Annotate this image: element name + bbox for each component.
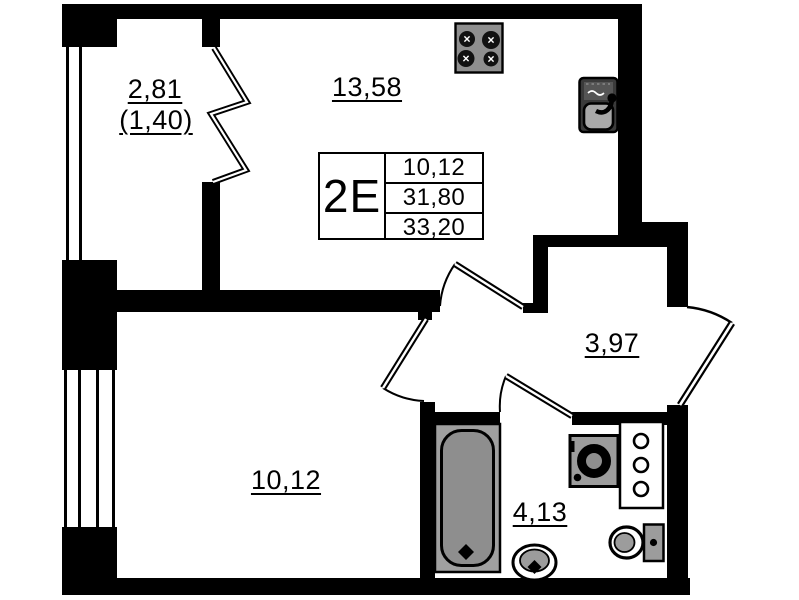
floor-plan: 2,81 (1,40) 13,58 3,97 10,12 4,13 2E 10,…: [0, 0, 799, 600]
door-bathroom-icon: [500, 376, 572, 416]
area-label-kitchen-living: 13,58: [318, 72, 416, 103]
unit-info-rows: 10,12 31,80 33,20: [386, 154, 482, 238]
washbasin-icon: [513, 545, 556, 580]
unit-living-area: 10,12: [386, 154, 482, 182]
door-entry-icon: [680, 307, 732, 405]
stove-icon: [456, 24, 503, 73]
door-bedroom-icon: [383, 319, 426, 401]
utility-shaft-icon: [620, 422, 663, 508]
area-label-bedroom: 10,12: [238, 465, 334, 496]
unit-total-area: 33,20: [386, 212, 482, 242]
balcony-door-accordion-icon: [211, 48, 247, 182]
washing-machine-icon: [570, 436, 618, 487]
area-label-bathroom: 4,13: [498, 497, 582, 528]
kitchen-sink-icon: [580, 78, 618, 132]
unit-area-without-balcony: 31,80: [386, 182, 482, 212]
unit-type-label: 2E: [320, 154, 386, 238]
area-label-balcony-reduced: (1,40): [106, 105, 206, 136]
unit-info-table: 2E 10,12 31,80 33,20: [318, 152, 484, 240]
area-label-hallway: 3,97: [570, 328, 654, 359]
toilet-icon: [610, 525, 664, 562]
door-living-hallway-icon: [440, 264, 523, 307]
bathtub-icon: [435, 424, 500, 572]
area-label-balcony: 2,81: [112, 74, 198, 105]
